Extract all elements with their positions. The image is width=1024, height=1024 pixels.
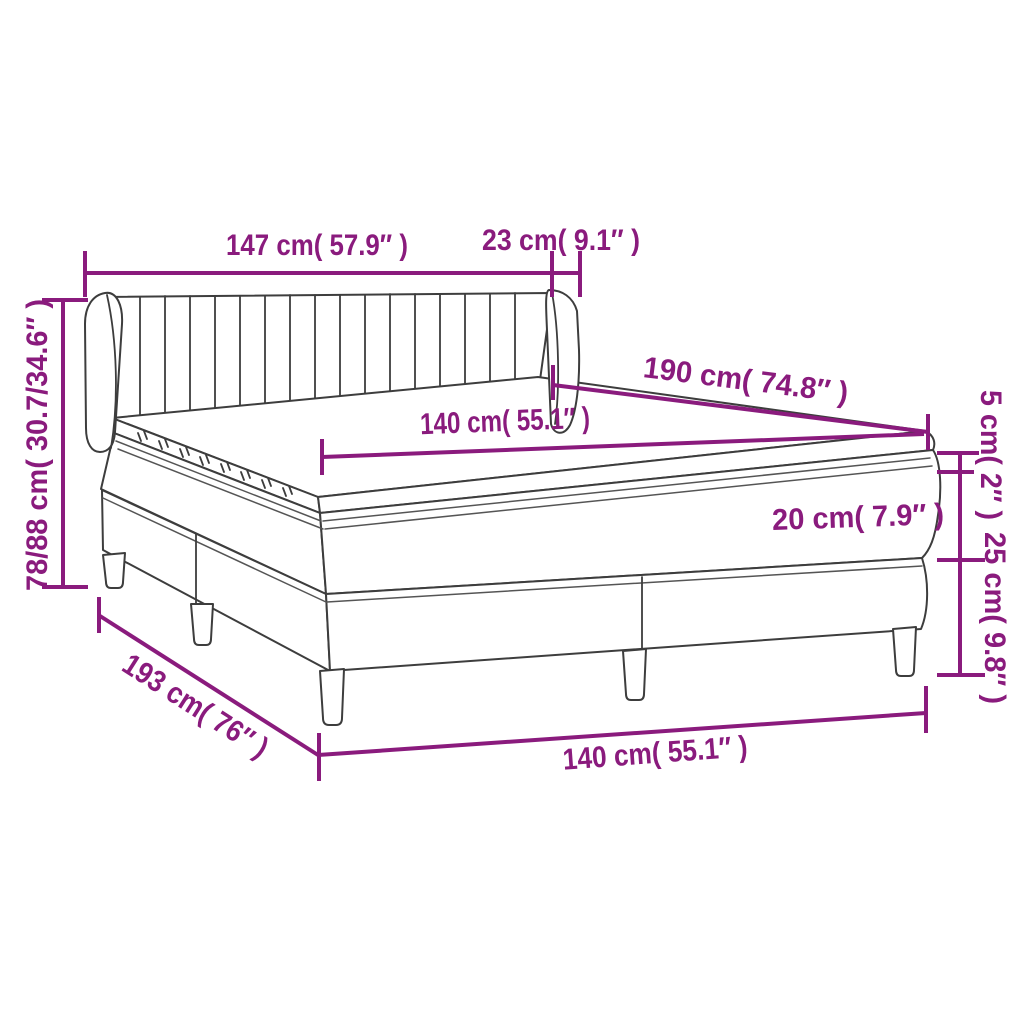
label-total-height: 78/88 cm( 30.7/34.6″ ): [21, 299, 54, 591]
label-mattress-thickness: 20 cm( 7.9″ ): [772, 498, 945, 537]
label-wing-depth: 23 cm( 9.1″ ): [482, 224, 640, 257]
label-topper-thickness: 5 cm( 2″ ): [974, 390, 1007, 520]
bed-leg: [191, 604, 213, 645]
bed-leg: [893, 627, 916, 676]
label-total-length: 193 cm( 76″ ): [116, 648, 274, 765]
label-headboard-width: 147 cm( 57.9″ ): [226, 229, 408, 262]
bed-leg: [320, 669, 344, 725]
label-mattress-width: 140 cm( 55.1″ ): [419, 402, 590, 442]
bed-leg: [103, 553, 125, 588]
bed-dimension-drawing: 147 cm( 57.9″ ) 23 cm( 9.1″ ) 78/88 cm( …: [0, 0, 1024, 1024]
label-base-height: 25 cm( 9.8″ ): [978, 532, 1011, 704]
bed-leg: [623, 649, 646, 700]
dimension-diagram: 147 cm( 57.9″ ) 23 cm( 9.1″ ) 78/88 cm( …: [0, 0, 1024, 1024]
